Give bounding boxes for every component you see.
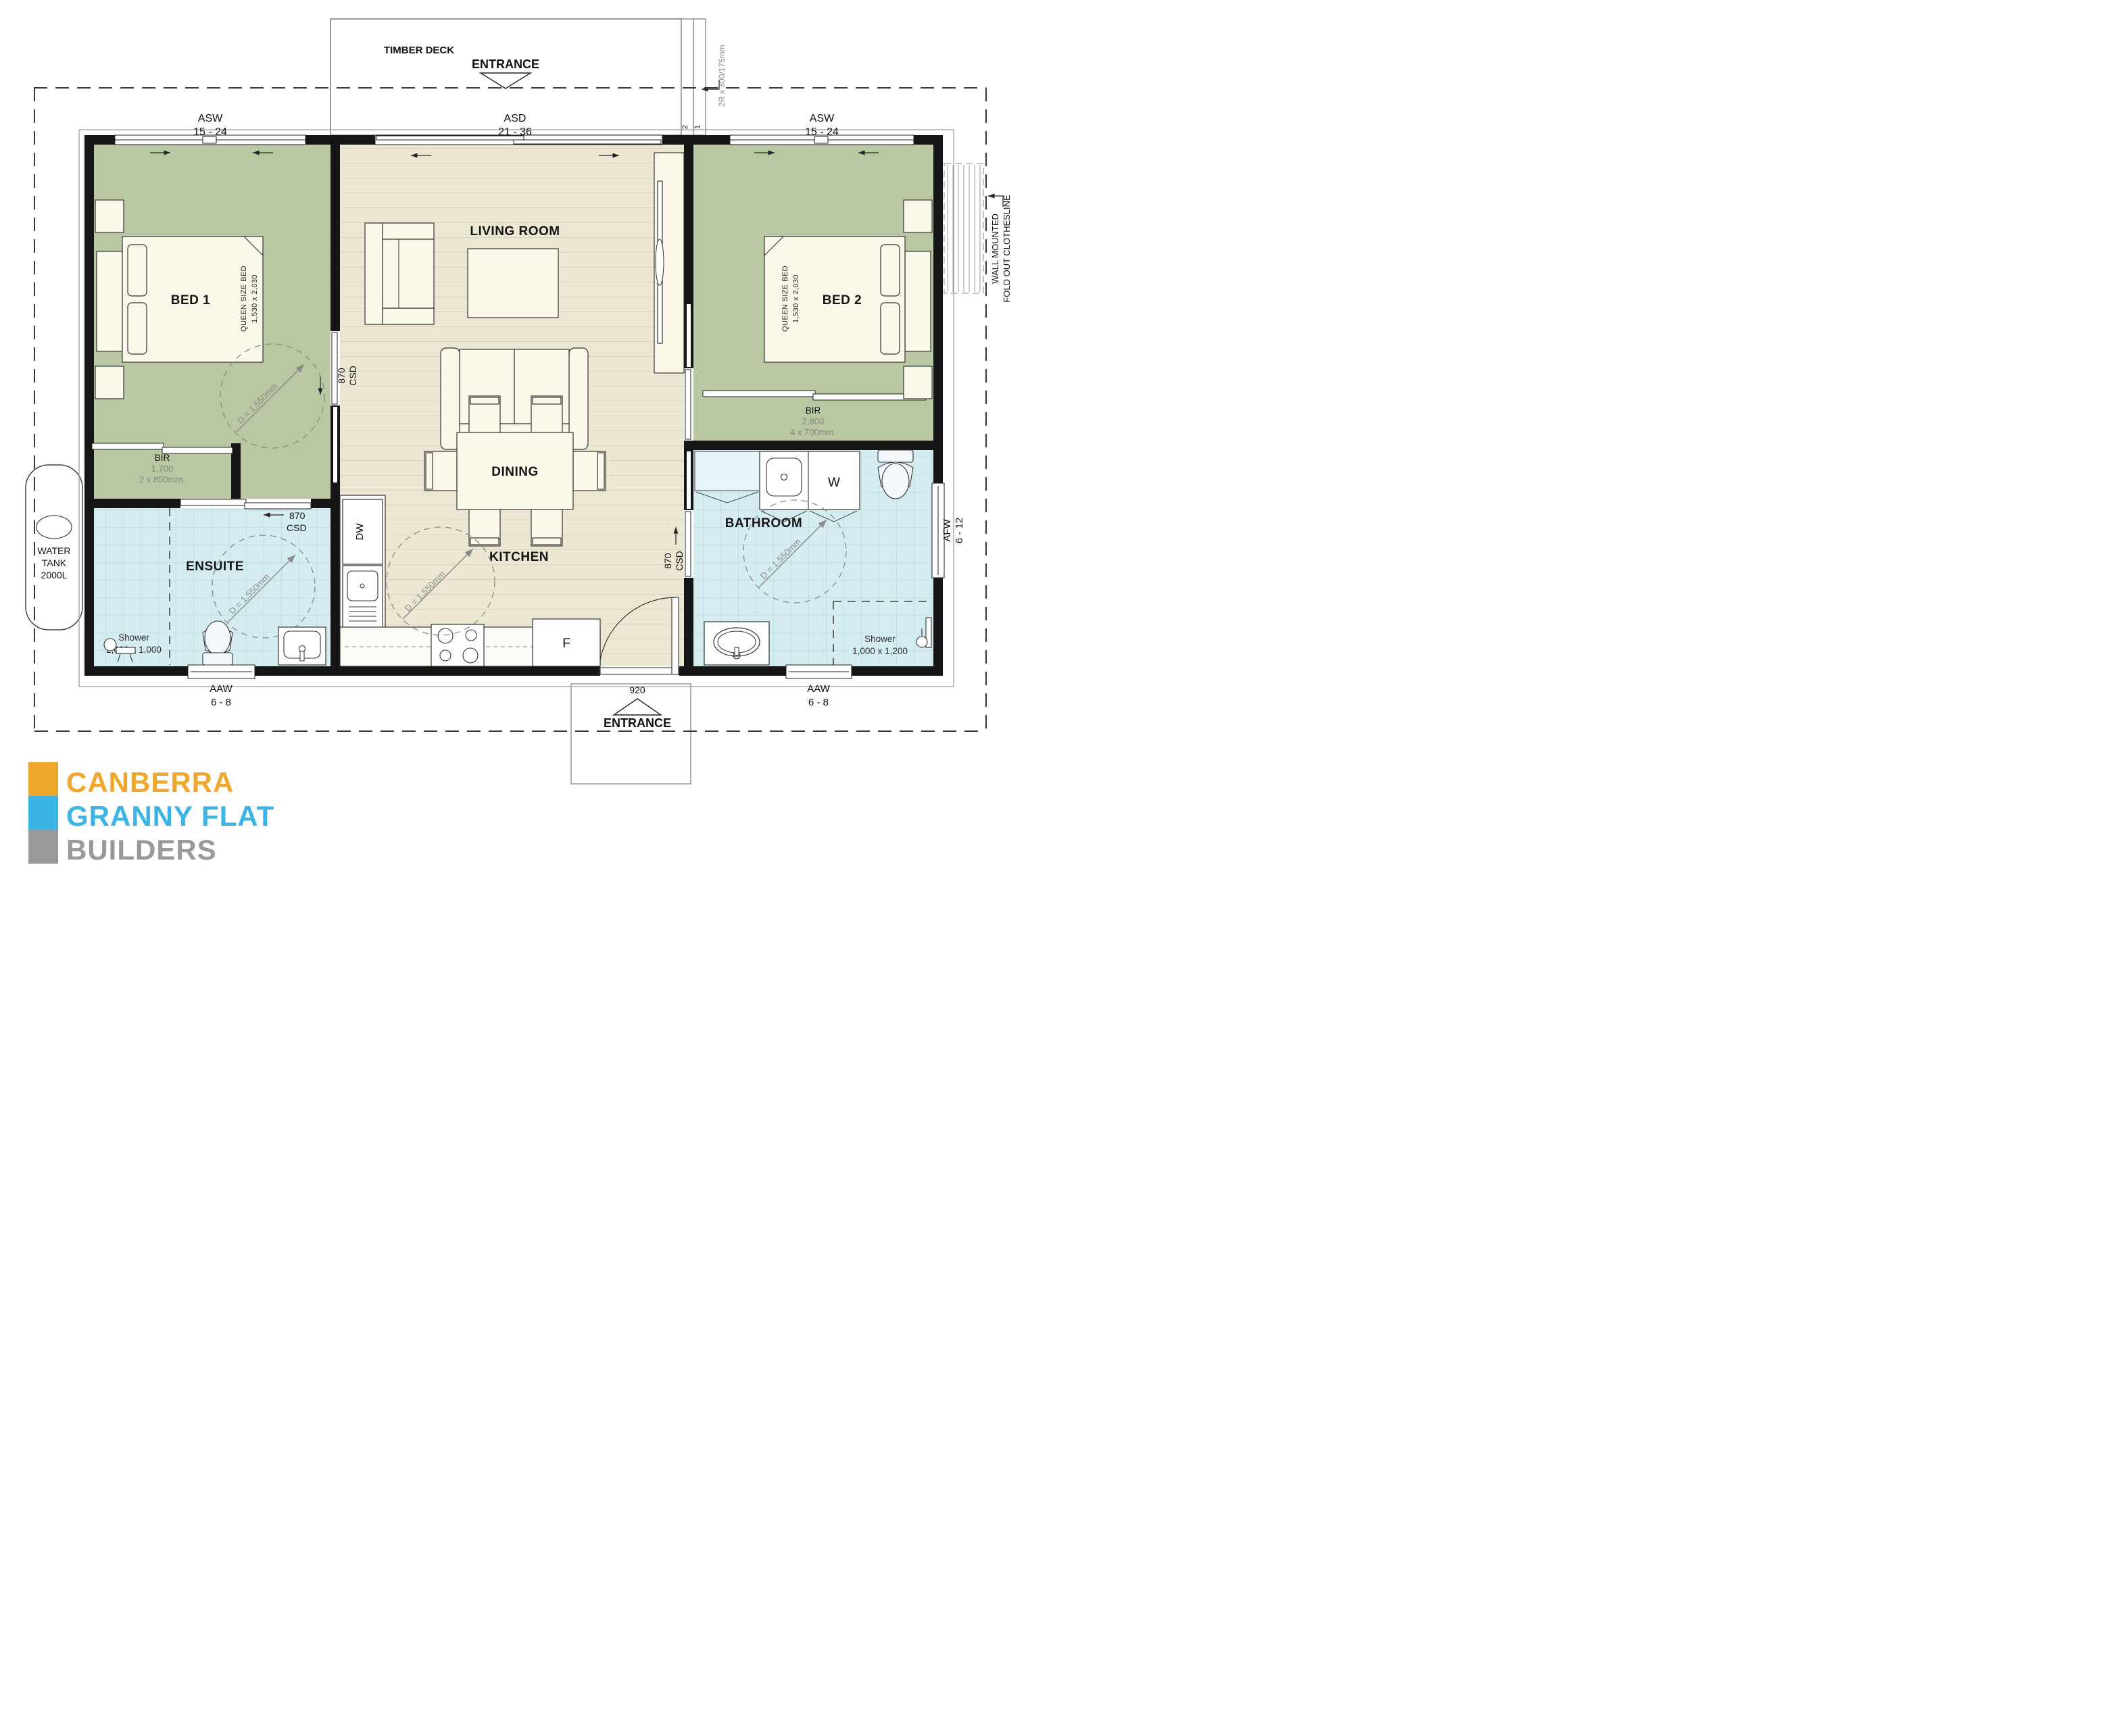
dining-label: DINING xyxy=(491,465,539,479)
bir2-dim2: 4 x 700mm. xyxy=(790,427,836,437)
pillow xyxy=(128,245,147,296)
asw-left-size: 15 - 24 xyxy=(193,126,227,138)
ensuite-label: ENSUITE xyxy=(186,560,244,574)
bir1-dim1: 1,700 xyxy=(151,464,174,474)
washer-label: W xyxy=(828,476,840,490)
company-logo: CANBERRA GRANNY FLAT BUILDERS xyxy=(28,762,274,866)
fridge: F xyxy=(533,619,600,666)
bir2-dim1: 2,800 xyxy=(802,416,825,426)
clothesline-leader-arrow-icon xyxy=(988,196,1003,207)
csd-pocket-bathroom xyxy=(687,451,691,509)
ensuite-csd-width: 870 xyxy=(289,510,305,521)
asd-code: ASD xyxy=(504,113,526,124)
floor-plan-canvas: TIMBER DECK ENTRANCE 2 1 2R x 300/175mm … xyxy=(0,0,1053,868)
ensuite-csd-door xyxy=(180,499,311,509)
toilet xyxy=(203,621,232,665)
aaw-right-size: 6 - 8 xyxy=(808,697,829,708)
bathroom-csd-type: CSD xyxy=(674,551,685,571)
bir1-label: BIR xyxy=(155,453,170,463)
bathroom-csd-width: 870 xyxy=(662,553,673,569)
window-aaw-left xyxy=(188,665,255,678)
step-1-label: 1 xyxy=(693,125,702,129)
bedside-table xyxy=(95,200,124,232)
bed1-queen-size: 1,530 x 2,030 xyxy=(251,274,259,323)
asw-right-code: ASW xyxy=(810,113,835,124)
clothesline-wires-icon xyxy=(948,165,980,292)
bed-headboard xyxy=(97,251,122,351)
pillow xyxy=(881,303,900,354)
bed1-csd-type: CSD xyxy=(347,366,358,386)
water-tank-line2: TANK xyxy=(42,557,67,568)
bed1-csd-width: 870 xyxy=(336,368,347,384)
clothesline-label-1: WALL MOUNTED xyxy=(990,214,1000,284)
kitchen-sink xyxy=(343,566,383,629)
living-room-label: LIVING ROOM xyxy=(470,224,560,239)
timber-deck-label: TIMBER DECK xyxy=(384,45,454,56)
aaw-right-code: AAW xyxy=(807,683,830,695)
entrance-top-label: ENTRANCE xyxy=(472,57,539,71)
tv-unit xyxy=(654,153,684,373)
water-tank-line3: 2000L xyxy=(41,570,68,580)
logo-line1: CANBERRA xyxy=(66,766,234,798)
logo-line2: GRANNY FLAT xyxy=(66,800,274,832)
pillow xyxy=(128,303,147,354)
bed2-label: BED 2 xyxy=(823,293,862,307)
logo-line3: BUILDERS xyxy=(66,834,217,866)
afw-code: AFW xyxy=(941,518,953,541)
bir2-label: BIR xyxy=(806,405,821,416)
csd-leaf-bathroom xyxy=(685,512,691,576)
porch-entrance-bottom: 920 ENTRANCE xyxy=(571,684,691,784)
bedside-table xyxy=(904,200,932,232)
asd-size: 21 - 36 xyxy=(498,126,532,138)
bathroom-shower-size: 1,000 x 1,200 xyxy=(852,646,908,656)
water-tank-line1: WATER xyxy=(38,545,71,556)
bed1-queen-label: QUEEN SIZE BED xyxy=(240,266,248,332)
dishwasher-label: DW xyxy=(354,523,366,541)
timber-deck: TIMBER DECK ENTRANCE 2 1 2R x 300/175mm xyxy=(330,19,727,135)
aaw-left-code: AAW xyxy=(210,683,232,695)
vanity-basin xyxy=(278,627,326,665)
bed-headboard xyxy=(905,251,931,351)
clothesline-label-2: FOLD OUT CLOTHESLINE xyxy=(1002,195,1012,303)
floor-plan-page: TIMBER DECK ENTRANCE 2 1 2R x 300/175mm … xyxy=(0,0,1053,868)
laundry-tub-washer: W xyxy=(760,451,860,510)
bathroom-shower-label: Shower xyxy=(864,634,896,644)
asw-right-size: 15 - 24 xyxy=(805,126,839,138)
bed2-queen-label: QUEEN SIZE BED xyxy=(781,266,789,332)
ensuite-shower-label: Shower xyxy=(118,633,149,643)
cooktop xyxy=(431,624,484,666)
bedside-table xyxy=(95,366,124,399)
vanity-basin xyxy=(704,622,769,665)
afw-size: 6 - 12 xyxy=(954,518,965,543)
bed2-queen-size: 1,530 x 2,030 xyxy=(792,274,800,323)
pillow xyxy=(881,245,900,296)
csd-pocket-bed1 xyxy=(333,407,337,482)
bedside-table xyxy=(904,366,932,399)
deck-step-2 xyxy=(681,19,693,135)
water-tank-lid-icon xyxy=(36,516,72,539)
entrance-bottom-label: ENTRANCE xyxy=(604,716,671,730)
logo-square-orange xyxy=(28,762,58,796)
entrance-door-leaf xyxy=(672,597,679,674)
kitchen-label: KITCHEN xyxy=(489,550,549,564)
step-riser-note: 2R x 300/175mm xyxy=(717,45,727,106)
bir1-dim2: 2 x 850mm. xyxy=(139,474,185,485)
bed1-label: BED 1 xyxy=(171,293,210,307)
asw-left-code: ASW xyxy=(198,113,223,124)
fridge-label: F xyxy=(562,637,570,651)
fold-out-clothesline: WALL MOUNTED FOLD OUT CLOTHESLINE xyxy=(944,164,1012,303)
ensuite-csd-type: CSD xyxy=(287,522,307,533)
deck-step-1 xyxy=(693,19,706,135)
logo-square-gray xyxy=(28,830,58,864)
window-aaw-right xyxy=(786,665,852,678)
armchair xyxy=(365,223,434,324)
aaw-left-size: 6 - 8 xyxy=(211,697,231,708)
csd-pocket-bed2 xyxy=(687,304,691,367)
porch-outline xyxy=(571,684,691,784)
logo-square-blue xyxy=(28,796,58,830)
step-2-label: 2 xyxy=(681,125,689,129)
csd-leaf-bed2 xyxy=(685,370,691,439)
bathroom-bench xyxy=(695,451,760,491)
coffee-table xyxy=(468,249,558,318)
